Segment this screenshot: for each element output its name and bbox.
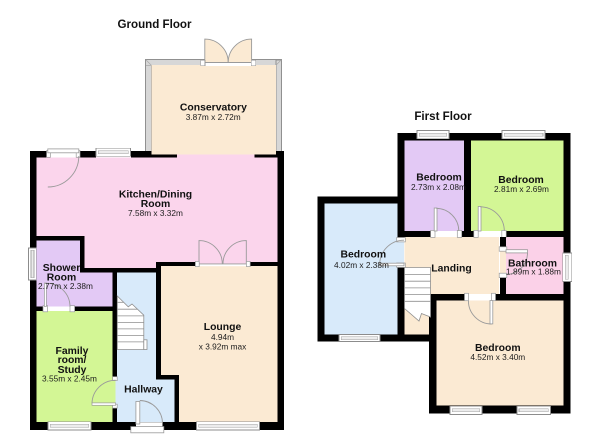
svg-text:4.94m: 4.94m [211,332,234,342]
svg-text:4.52m x 3.40m: 4.52m x 3.40m [470,352,525,362]
svg-text:4.02m x 2.38m: 4.02m x 2.38m [334,260,389,270]
svg-text:1.89m x 1.88m: 1.89m x 1.88m [506,267,561,277]
svg-text:x 3.92m max: x 3.92m max [199,342,247,352]
svg-text:Landing: Landing [431,264,471,275]
svg-text:First Floor: First Floor [414,110,472,123]
svg-text:7.58m x 3.32m: 7.58m x 3.32m [128,208,183,218]
svg-text:2.77m x 2.38m: 2.77m x 2.38m [38,281,93,291]
svg-text:3.55m x 2.45m: 3.55m x 2.45m [42,374,97,384]
svg-text:Hallway: Hallway [124,385,163,396]
svg-text:2.73m x 2.08m: 2.73m x 2.08m [411,182,466,192]
svg-text:2.81m x 2.69m: 2.81m x 2.69m [494,184,549,194]
svg-text:3.87m x 2.72m: 3.87m x 2.72m [186,112,241,122]
svg-text:Bedroom: Bedroom [340,250,386,261]
svg-text:Ground Floor: Ground Floor [117,18,192,31]
